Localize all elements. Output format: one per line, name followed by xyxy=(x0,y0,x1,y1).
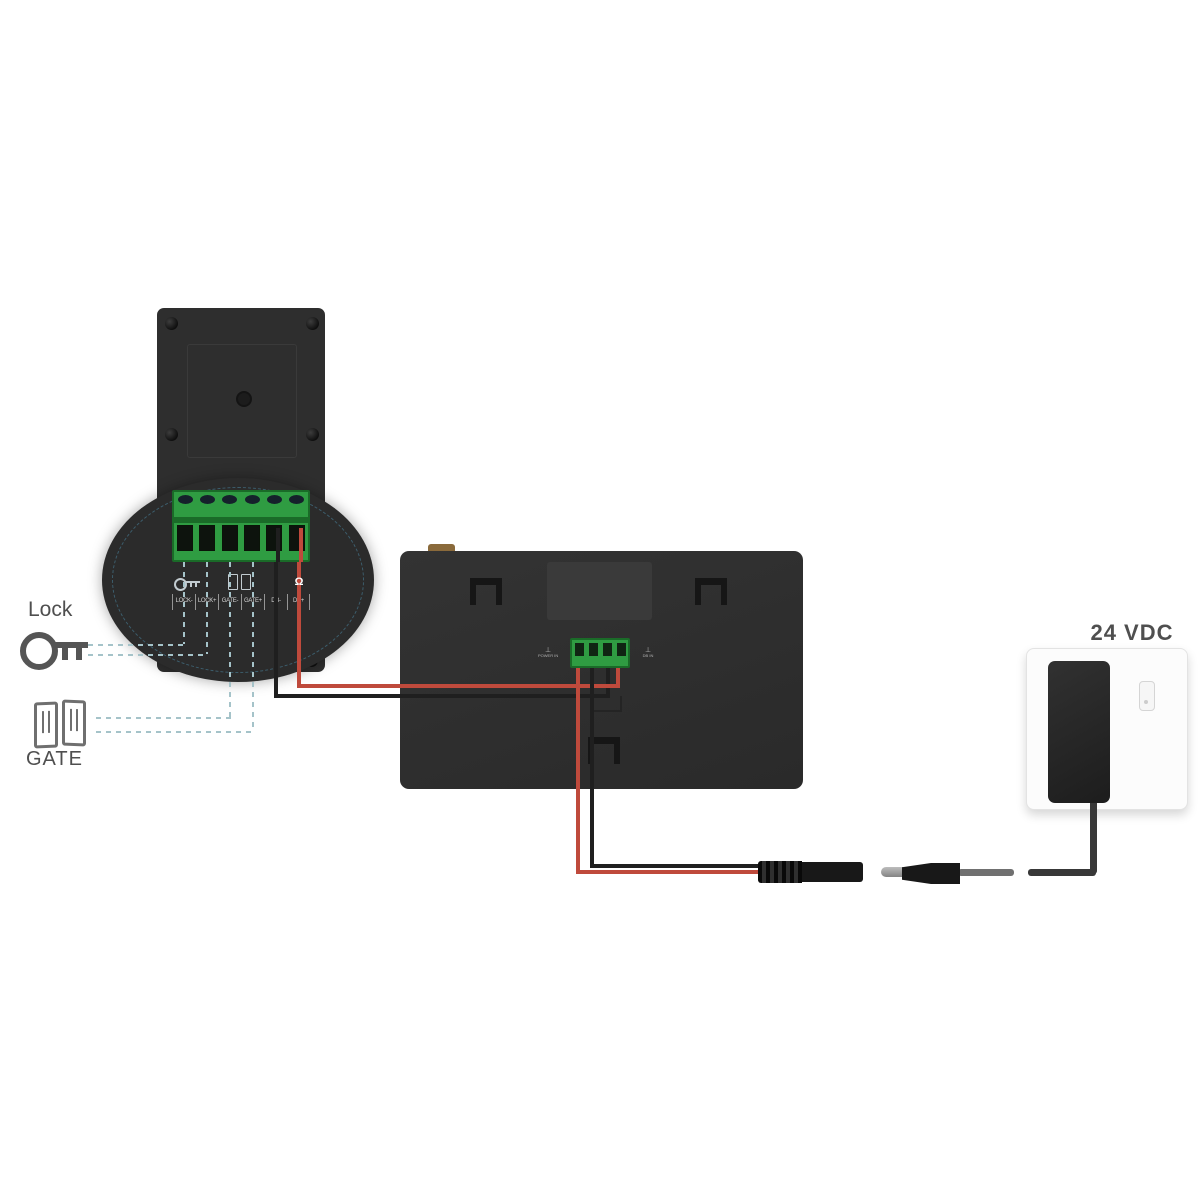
lock-key-icon xyxy=(195,583,197,587)
lock-dashed-line xyxy=(206,562,208,654)
power-wire-red xyxy=(576,870,760,874)
lock-key-icon xyxy=(174,578,187,591)
db-plus-wire-stub xyxy=(299,528,303,562)
key-icon xyxy=(20,632,58,670)
gate-icon xyxy=(34,702,58,749)
gate-dashed-line xyxy=(252,562,254,731)
lock-dashed-line xyxy=(183,562,185,644)
port-label-left: ⊥ POWER IN xyxy=(528,647,568,662)
power-switch xyxy=(1139,681,1155,711)
adapter-cord xyxy=(1028,869,1096,876)
power-cable xyxy=(958,869,1014,876)
screw-icon xyxy=(306,428,319,441)
lock-dashed-line xyxy=(88,654,208,656)
db-minus-wire-stub xyxy=(276,528,280,562)
gate-dashed-line xyxy=(96,717,231,719)
dc-jack-female xyxy=(758,861,802,883)
lock-label: Lock xyxy=(28,598,72,622)
db-minus-wire xyxy=(274,694,610,698)
db-minus-wire xyxy=(606,666,610,698)
screw-icon xyxy=(306,317,319,330)
wiring-diagram: Ω LOCK- LOCK+ GATE- GATE+ DB- DB+ Lock G… xyxy=(0,0,1200,1200)
gate-icon xyxy=(62,700,86,747)
key-icon xyxy=(52,642,88,648)
db-plus-wire xyxy=(616,666,620,688)
gate-dashed-line xyxy=(229,562,231,717)
power-adapter xyxy=(1048,661,1110,803)
power-rating-label: 24 VDC xyxy=(1062,620,1200,646)
screw-icon xyxy=(165,317,178,330)
dc-plug-male xyxy=(902,863,960,884)
lock-dashed-line xyxy=(88,644,185,646)
lock-key-icon xyxy=(186,581,200,583)
panel-seam xyxy=(590,710,622,712)
power-switch-dot xyxy=(1144,700,1148,704)
dc-jack-female xyxy=(802,862,863,882)
db-plus-wire xyxy=(297,684,620,688)
panel-seam xyxy=(620,696,622,712)
mounting-hook-icon xyxy=(695,578,727,605)
key-icon xyxy=(76,648,82,660)
terminal-labels: LOCK- LOCK+ GATE- GATE+ DB- DB+ xyxy=(172,594,310,610)
key-icon xyxy=(62,648,68,660)
gate-label: GATE xyxy=(26,748,83,771)
gate-dashed-line xyxy=(96,731,254,733)
gate-icon xyxy=(241,574,251,590)
dc-plug-tip xyxy=(881,867,903,877)
door-station-terminal-block xyxy=(172,490,310,562)
indoor-terminal-block xyxy=(570,638,630,668)
indoor-unit-recess xyxy=(547,562,652,620)
terminal-screw-slots xyxy=(174,495,308,504)
power-wire-black xyxy=(590,864,760,868)
power-wire-black xyxy=(590,664,594,868)
cable-hole xyxy=(236,391,252,407)
terminal-block-band xyxy=(174,517,308,523)
port-label-right: ⊥ DB IN xyxy=(628,647,668,662)
power-wire-red xyxy=(576,664,580,874)
doorbell-icon: Ω xyxy=(292,573,306,591)
screw-icon xyxy=(165,428,178,441)
mounting-hook-icon xyxy=(470,578,502,605)
lock-key-icon xyxy=(190,583,192,587)
adapter-cord xyxy=(1090,800,1097,874)
terminal-wire-holes xyxy=(174,525,308,551)
